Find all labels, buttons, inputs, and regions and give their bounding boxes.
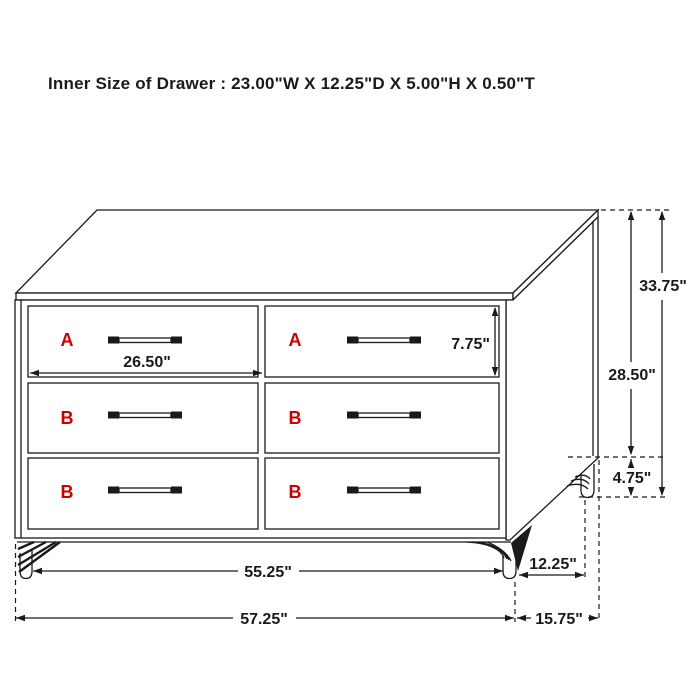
svg-text:4.75": 4.75" — [613, 470, 652, 487]
dresser-top-surface — [16, 210, 598, 293]
svg-text:57.25": 57.25" — [240, 611, 288, 628]
svg-text:28.50": 28.50" — [608, 367, 656, 384]
svg-text:12.25": 12.25" — [529, 556, 577, 573]
svg-text:15.75": 15.75" — [535, 611, 583, 628]
drawer-label-a-right: A — [289, 330, 302, 350]
drawer-handle-a-left — [108, 337, 182, 344]
furniture-dimension-diagram: Inner Size of Drawer : 23.00"W X 12.25"D… — [0, 0, 700, 700]
drawer-handle-b1-left — [108, 412, 182, 419]
dim-leg-span-width: 55.25" — [33, 564, 503, 581]
drawer-label-b2-left: B — [61, 482, 74, 502]
drawer-label-b1-right: B — [289, 408, 302, 428]
svg-text:55.25": 55.25" — [244, 564, 292, 581]
drawer-handle-b1-right — [347, 412, 421, 419]
dim-overall-width: 57.25" — [16, 611, 514, 628]
top-slab-front-edge — [16, 293, 513, 300]
drawer-label-b1-left: B — [61, 408, 74, 428]
dim-leg-span-depth: 12.25" — [519, 556, 584, 578]
svg-text:7.75": 7.75" — [451, 336, 490, 353]
drawer-label-a-left: A — [61, 330, 74, 350]
drawer-handle-b2-right — [347, 487, 421, 494]
drawer-label-b2-right: B — [289, 482, 302, 502]
drawer-handle-b2-left — [108, 487, 182, 494]
svg-text:26.50": 26.50" — [123, 354, 171, 371]
drawer-handle-a-right — [347, 337, 421, 344]
dim-overall-depth: 15.75" — [517, 611, 598, 628]
dim-case-height: 28.50" — [608, 211, 656, 455]
svg-text:33.75": 33.75" — [639, 278, 687, 295]
dim-overall-height: 33.75" — [639, 211, 687, 496]
dim-leg-height: 4.75" — [613, 459, 652, 496]
dresser-diagram: A A B B B B — [0, 0, 700, 700]
